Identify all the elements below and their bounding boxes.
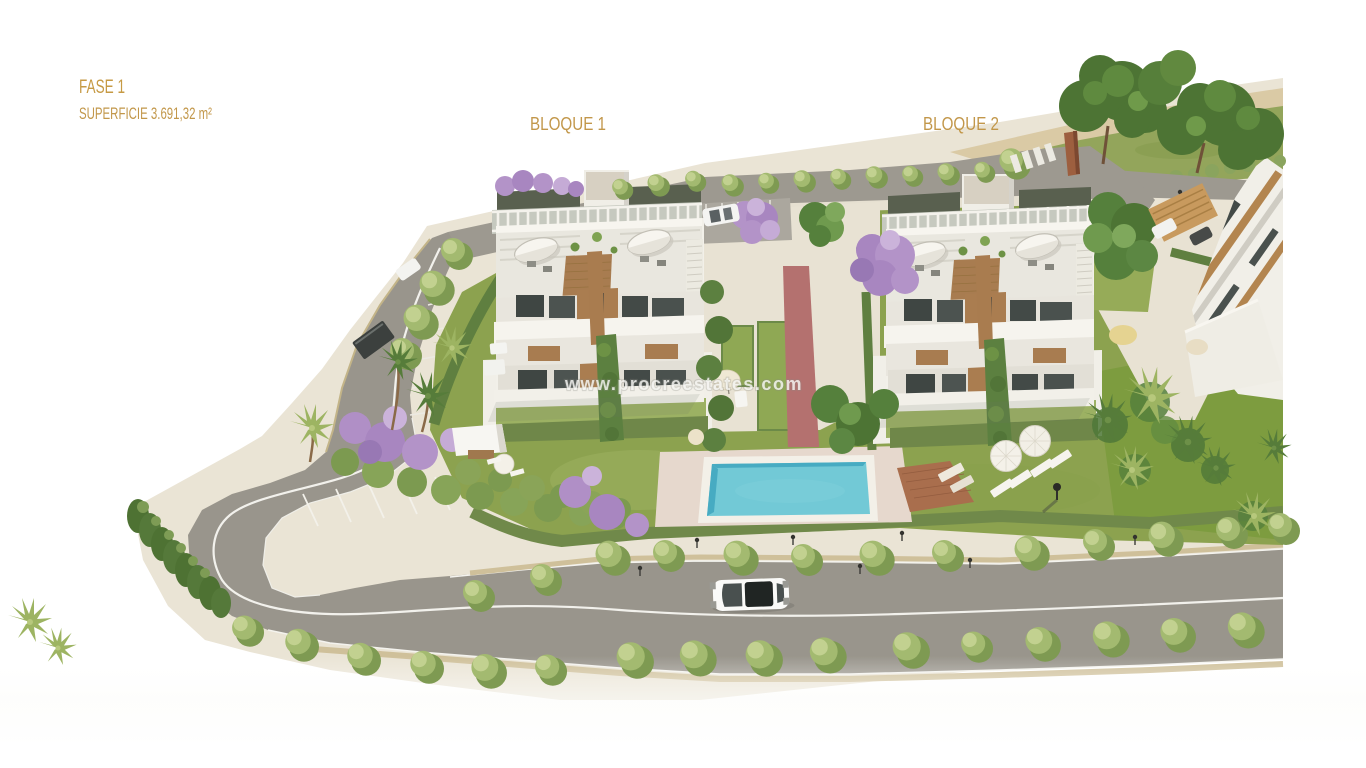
svg-text:FASE 1: FASE 1 <box>79 76 125 98</box>
svg-text:BLOQUE 1: BLOQUE 1 <box>530 113 606 134</box>
svg-text:www.procreestates.com: www.procreestates.com <box>564 374 803 394</box>
svg-text:SUPERFICIE 3.691,32 m²: SUPERFICIE 3.691,32 m² <box>79 105 212 123</box>
svg-text:BLOQUE 2: BLOQUE 2 <box>923 113 999 134</box>
